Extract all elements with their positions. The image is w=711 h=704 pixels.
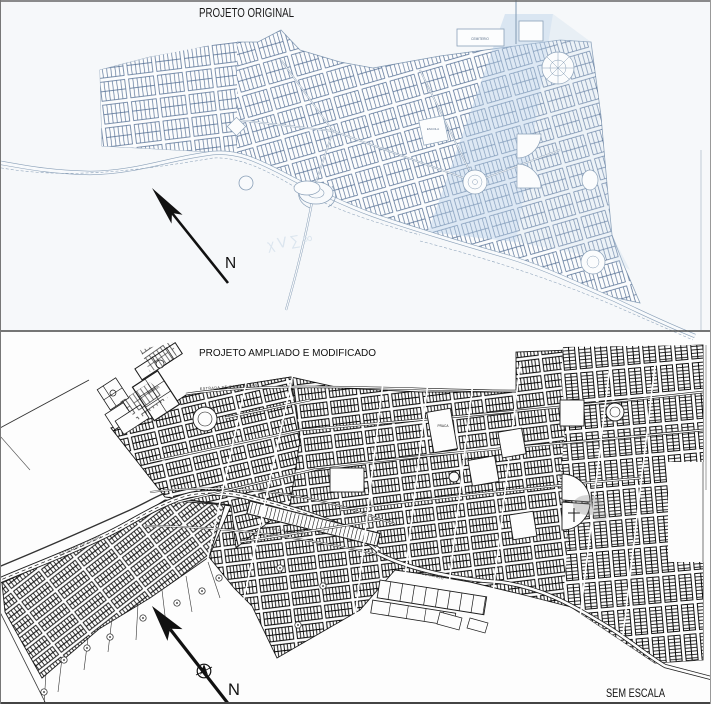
svg-text:PROJETO ORIGINAL: PROJETO ORIGINAL (199, 6, 294, 20)
svg-text:N: N (228, 681, 240, 699)
svg-text:N: N (225, 255, 236, 272)
svg-text:ESCOLA: ESCOLA (427, 127, 439, 131)
svg-text:SEM ESCALA: SEM ESCALA (606, 688, 665, 700)
svg-text:CEMITERIO: CEMITERIO (471, 37, 489, 41)
svg-text:PROJETO AMPLIADO E MODIFICADO: PROJETO AMPLIADO E MODIFICADO (199, 347, 376, 359)
svg-text:PRACA: PRACA (438, 424, 450, 428)
